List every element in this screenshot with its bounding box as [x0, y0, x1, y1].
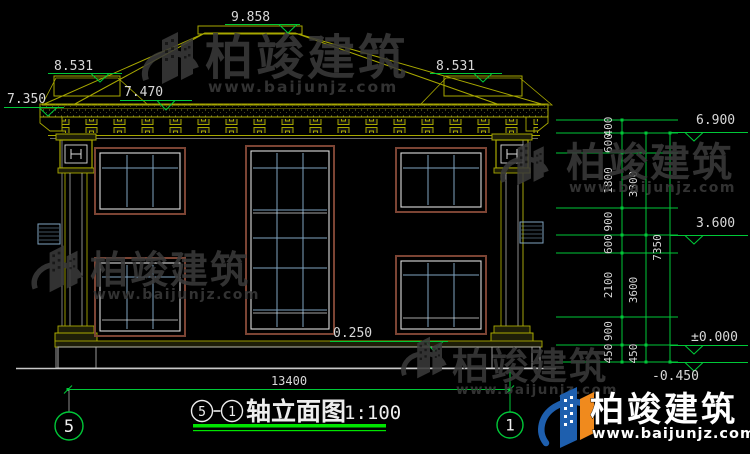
axis-right-number: 1 — [505, 416, 515, 435]
watermark-top: 柏竣建筑 www.baijunjz.com — [145, 30, 409, 96]
elevation-drawing-canvas: 9.858 8.531 8.531 7.350 7.470 0.250 — [0, 0, 750, 454]
elevation-marker-ground: -0.450 — [652, 363, 748, 385]
logo-name: 柏竣建筑 — [590, 390, 738, 430]
axis-left-number: 5 — [64, 417, 74, 437]
window-stairwell-center — [246, 146, 334, 334]
cad-viewport: 9.858 8.531 8.531 7.350 7.470 0.250 — [0, 0, 750, 454]
dim-7350: 7350 — [651, 234, 664, 261]
elevation-marker-left-upper: 8.531 — [48, 59, 122, 82]
title-axis-to: 1 — [228, 405, 236, 420]
dim-13400: 13400 — [271, 374, 307, 388]
dim-900a: 900 — [602, 212, 615, 232]
watermark-mid-left: 柏竣建筑 www.baijunjz.com — [34, 245, 260, 303]
elevation-second-floor-label: 3.600 — [696, 216, 735, 231]
dim-450b: 450 — [627, 344, 640, 364]
capital-ornament — [507, 149, 517, 159]
title-underline-thick — [193, 424, 386, 428]
dim-900b: 900 — [602, 321, 615, 341]
elevation-right-upper-label: 8.531 — [436, 59, 475, 74]
dim-600b: 600 — [602, 234, 615, 254]
elevation-marker-right-eave: 6.900 — [670, 113, 748, 141]
dim-3600: 3600 — [627, 277, 640, 304]
watermark-url: www.baijunjz.com — [208, 78, 398, 96]
title-text: 轴立面图 — [246, 397, 346, 426]
elevation-zero-label: ±0.000 — [691, 330, 738, 345]
eave-cornice — [40, 104, 548, 139]
window-lower-right — [396, 256, 486, 334]
right-bay-roof — [420, 76, 552, 105]
title-scale: 1:100 — [344, 402, 401, 424]
bottom-dimension: 13400 — [64, 374, 514, 394]
eave-corner-bracket-left — [40, 117, 62, 131]
elevation-ground-label: -0.450 — [652, 369, 699, 384]
window-upper-left — [95, 148, 185, 214]
elevation-marker-zero: ±0.000 — [670, 330, 748, 354]
elevation-right-eave-label: 6.900 — [696, 113, 735, 128]
elevation-left-upper-label: 8.531 — [54, 59, 93, 74]
elevation-plinth-label: 0.250 — [333, 326, 372, 341]
window-upper-right — [396, 148, 486, 212]
watermark-url: www.baijunjz.com — [93, 287, 260, 303]
watermark-mid-right: 柏竣建筑 www.baijunjz.com — [503, 140, 736, 196]
elevation-slope-label: 7.470 — [124, 85, 163, 100]
watermark-bottom: 柏竣建筑 www.baijunjz.com — [404, 337, 618, 398]
brand-logo: 柏竣建筑 www.baijunjz.com — [541, 387, 750, 448]
elevation-ridge-label: 9.858 — [231, 10, 270, 25]
watermark-name: 柏竣建筑 — [90, 248, 250, 292]
capital-ornament — [71, 149, 81, 159]
elevation-left-eave-label: 7.350 — [7, 92, 46, 107]
vent-box-left — [38, 224, 60, 244]
title-underline-thin — [193, 430, 386, 431]
title-axis-from: 5 — [198, 405, 206, 420]
logo-building-blue — [560, 387, 577, 448]
elevation-marker-right-upper: 8.531 — [430, 59, 502, 82]
watermark-url: www.baijunjz.com — [569, 180, 736, 196]
dentil-band — [62, 119, 538, 133]
dim-2100: 2100 — [602, 272, 615, 299]
axis-bubble-left: 5 — [55, 390, 83, 440]
elevation-marker-second-floor: 3.600 — [670, 216, 748, 244]
drawing-title: 5 1 轴立面图 1:100 — [192, 397, 402, 431]
logo-url: www.baijunjz.com — [592, 426, 750, 442]
